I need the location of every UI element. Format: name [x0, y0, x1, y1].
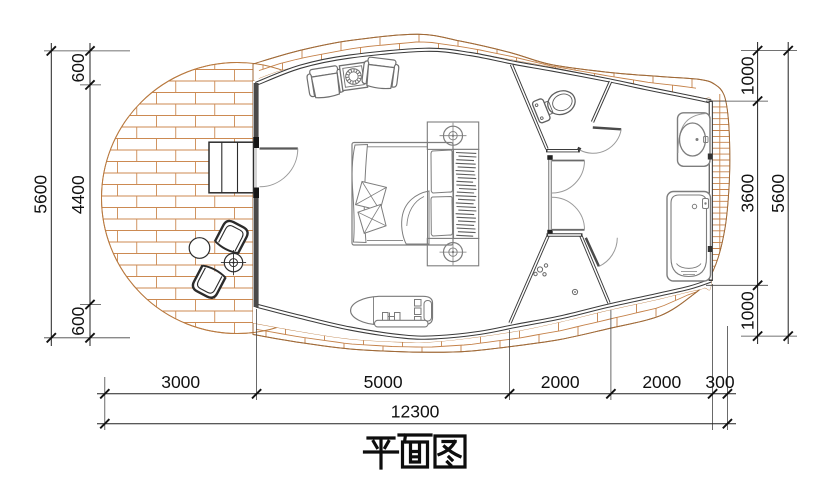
svg-text:600: 600 — [68, 306, 88, 335]
svg-text:3000: 3000 — [161, 372, 200, 392]
svg-text:4400: 4400 — [68, 175, 88, 214]
svg-text:1000: 1000 — [737, 56, 757, 95]
svg-text:300: 300 — [705, 372, 734, 392]
svg-text:12300: 12300 — [391, 402, 440, 422]
svg-text:3600: 3600 — [737, 173, 757, 212]
svg-text:5600: 5600 — [31, 175, 51, 214]
svg-text:5600: 5600 — [768, 174, 788, 213]
svg-text:2000: 2000 — [642, 372, 681, 392]
svg-text:5000: 5000 — [364, 372, 403, 392]
svg-text:1000: 1000 — [737, 291, 757, 330]
svg-text:600: 600 — [68, 53, 88, 82]
svg-text:2000: 2000 — [541, 372, 580, 392]
